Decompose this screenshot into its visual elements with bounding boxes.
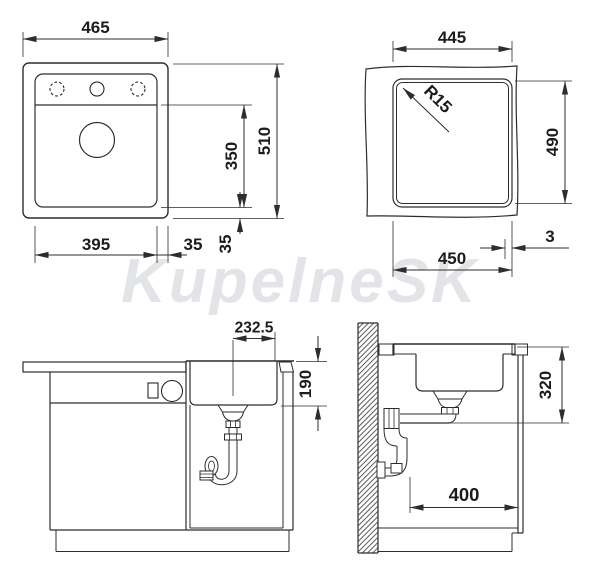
front-worktop — [23, 362, 294, 372]
dim-cutout-width-bottom: 450 — [393, 221, 512, 277]
cutout-view: R15 445 490 450 3 — [365, 28, 572, 277]
dim-drain-center-offset: 232.5 — [233, 320, 275, 362]
front-siphon — [200, 405, 248, 485]
dim-overall-width-label: 465 — [81, 18, 109, 37]
dim-bowl-depth-front-label: 190 — [296, 370, 315, 398]
tap-holes — [50, 82, 145, 96]
side-cabinet — [378, 355, 523, 552]
dim-bowl-depth-position: 350 — [161, 105, 252, 208]
dim-bowl-width: 395 — [35, 226, 157, 263]
dim-cutout-width-bottom-label: 450 — [438, 249, 466, 268]
dim-corner-radius-label: R15 — [420, 81, 455, 116]
dim-base-clearance-label: 400 — [449, 484, 480, 505]
appliance-control-knob — [162, 381, 183, 402]
wall-section — [358, 323, 378, 553]
dim-drain-center-offset-label: 232.5 — [235, 320, 274, 337]
side-worktop — [379, 344, 528, 355]
dim-edge-gap-bottom-label: 35 — [216, 235, 235, 254]
side-sink-section — [393, 344, 515, 391]
front-view: 232.5 190 — [23, 320, 327, 552]
front-cabinet — [50, 372, 293, 552]
dim-overall-width: 465 — [23, 18, 168, 57]
tap-hole-left-icon — [50, 82, 64, 96]
dim-bowl-depth-label: 350 — [222, 142, 241, 170]
side-view: 320 400 — [358, 323, 569, 553]
tap-hole-right-icon — [131, 82, 145, 96]
dim-drain-outlet-height: 320 — [449, 347, 569, 423]
top-view-sink-outline — [23, 63, 168, 218]
dim-edge-gap-bottom: 35 — [216, 192, 240, 253]
sink-drawing-svg: 465 510 350 395 35 — [0, 0, 600, 569]
dim-edge-gap-right: 35 — [157, 226, 202, 263]
cutout-rect — [393, 79, 512, 207]
appliance-control-rect — [148, 383, 158, 398]
dim-overall-depth-label: 510 — [255, 127, 274, 155]
dim-edge-offset-label: 3 — [545, 227, 554, 246]
dim-corner-radius: R15 — [403, 81, 456, 132]
top-view: 465 510 350 395 35 — [23, 18, 284, 263]
dim-edge-offset: 3 — [480, 227, 569, 259]
dim-cutout-height: 490 — [515, 81, 572, 204]
dim-cutout-width-top: 445 — [393, 28, 512, 62]
tap-hole-center-icon — [90, 82, 104, 96]
front-sink-section — [186, 340, 294, 405]
dim-cutout-width-top-label: 445 — [438, 28, 466, 47]
dim-overall-depth: 510 — [173, 64, 284, 219]
dim-base-clearance: 400 — [410, 477, 518, 513]
side-drain-trap — [377, 391, 467, 478]
dim-drain-outlet-height-label: 320 — [536, 371, 555, 399]
drain-circle — [80, 123, 115, 158]
dim-edge-gap-right-label: 35 — [184, 235, 203, 254]
dim-bowl-depth-front: 190 — [281, 336, 327, 431]
dim-bowl-width-label: 395 — [82, 235, 110, 254]
technical-drawing: KupelneSK — [0, 0, 600, 569]
dim-cutout-height-label: 490 — [543, 128, 562, 156]
